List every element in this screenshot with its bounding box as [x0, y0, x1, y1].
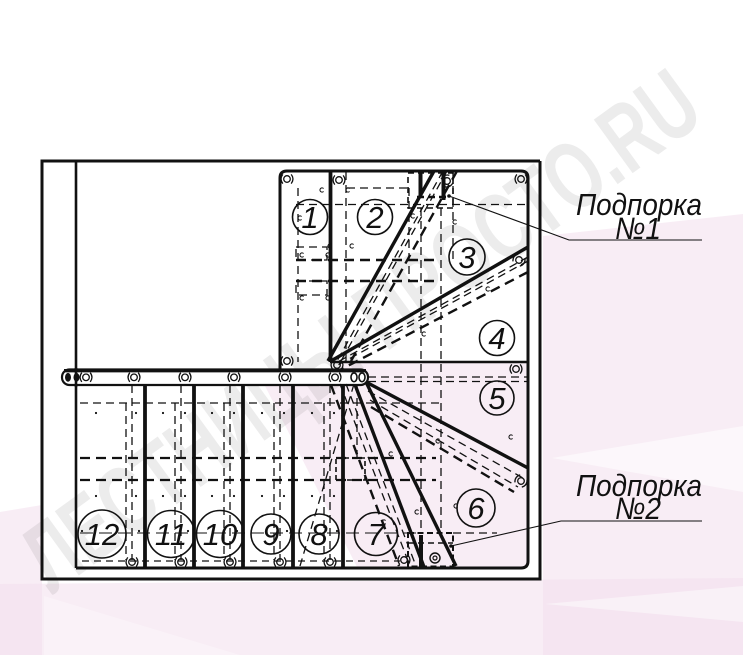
svg-text:5: 5 [488, 381, 506, 416]
svg-text:7: 7 [367, 517, 386, 552]
svg-text:4: 4 [488, 321, 505, 356]
svg-text:10: 10 [203, 517, 237, 552]
svg-text:8: 8 [310, 517, 328, 552]
svg-text:12: 12 [85, 517, 119, 552]
svg-text:№1: №1 [615, 211, 661, 246]
svg-text:1: 1 [301, 200, 318, 235]
svg-text:6: 6 [467, 491, 485, 526]
svg-text:9: 9 [262, 517, 279, 552]
svg-text:№2: №2 [615, 491, 661, 526]
svg-text:11: 11 [155, 517, 187, 552]
svg-text:3: 3 [458, 240, 475, 275]
svg-text:2: 2 [365, 200, 383, 235]
